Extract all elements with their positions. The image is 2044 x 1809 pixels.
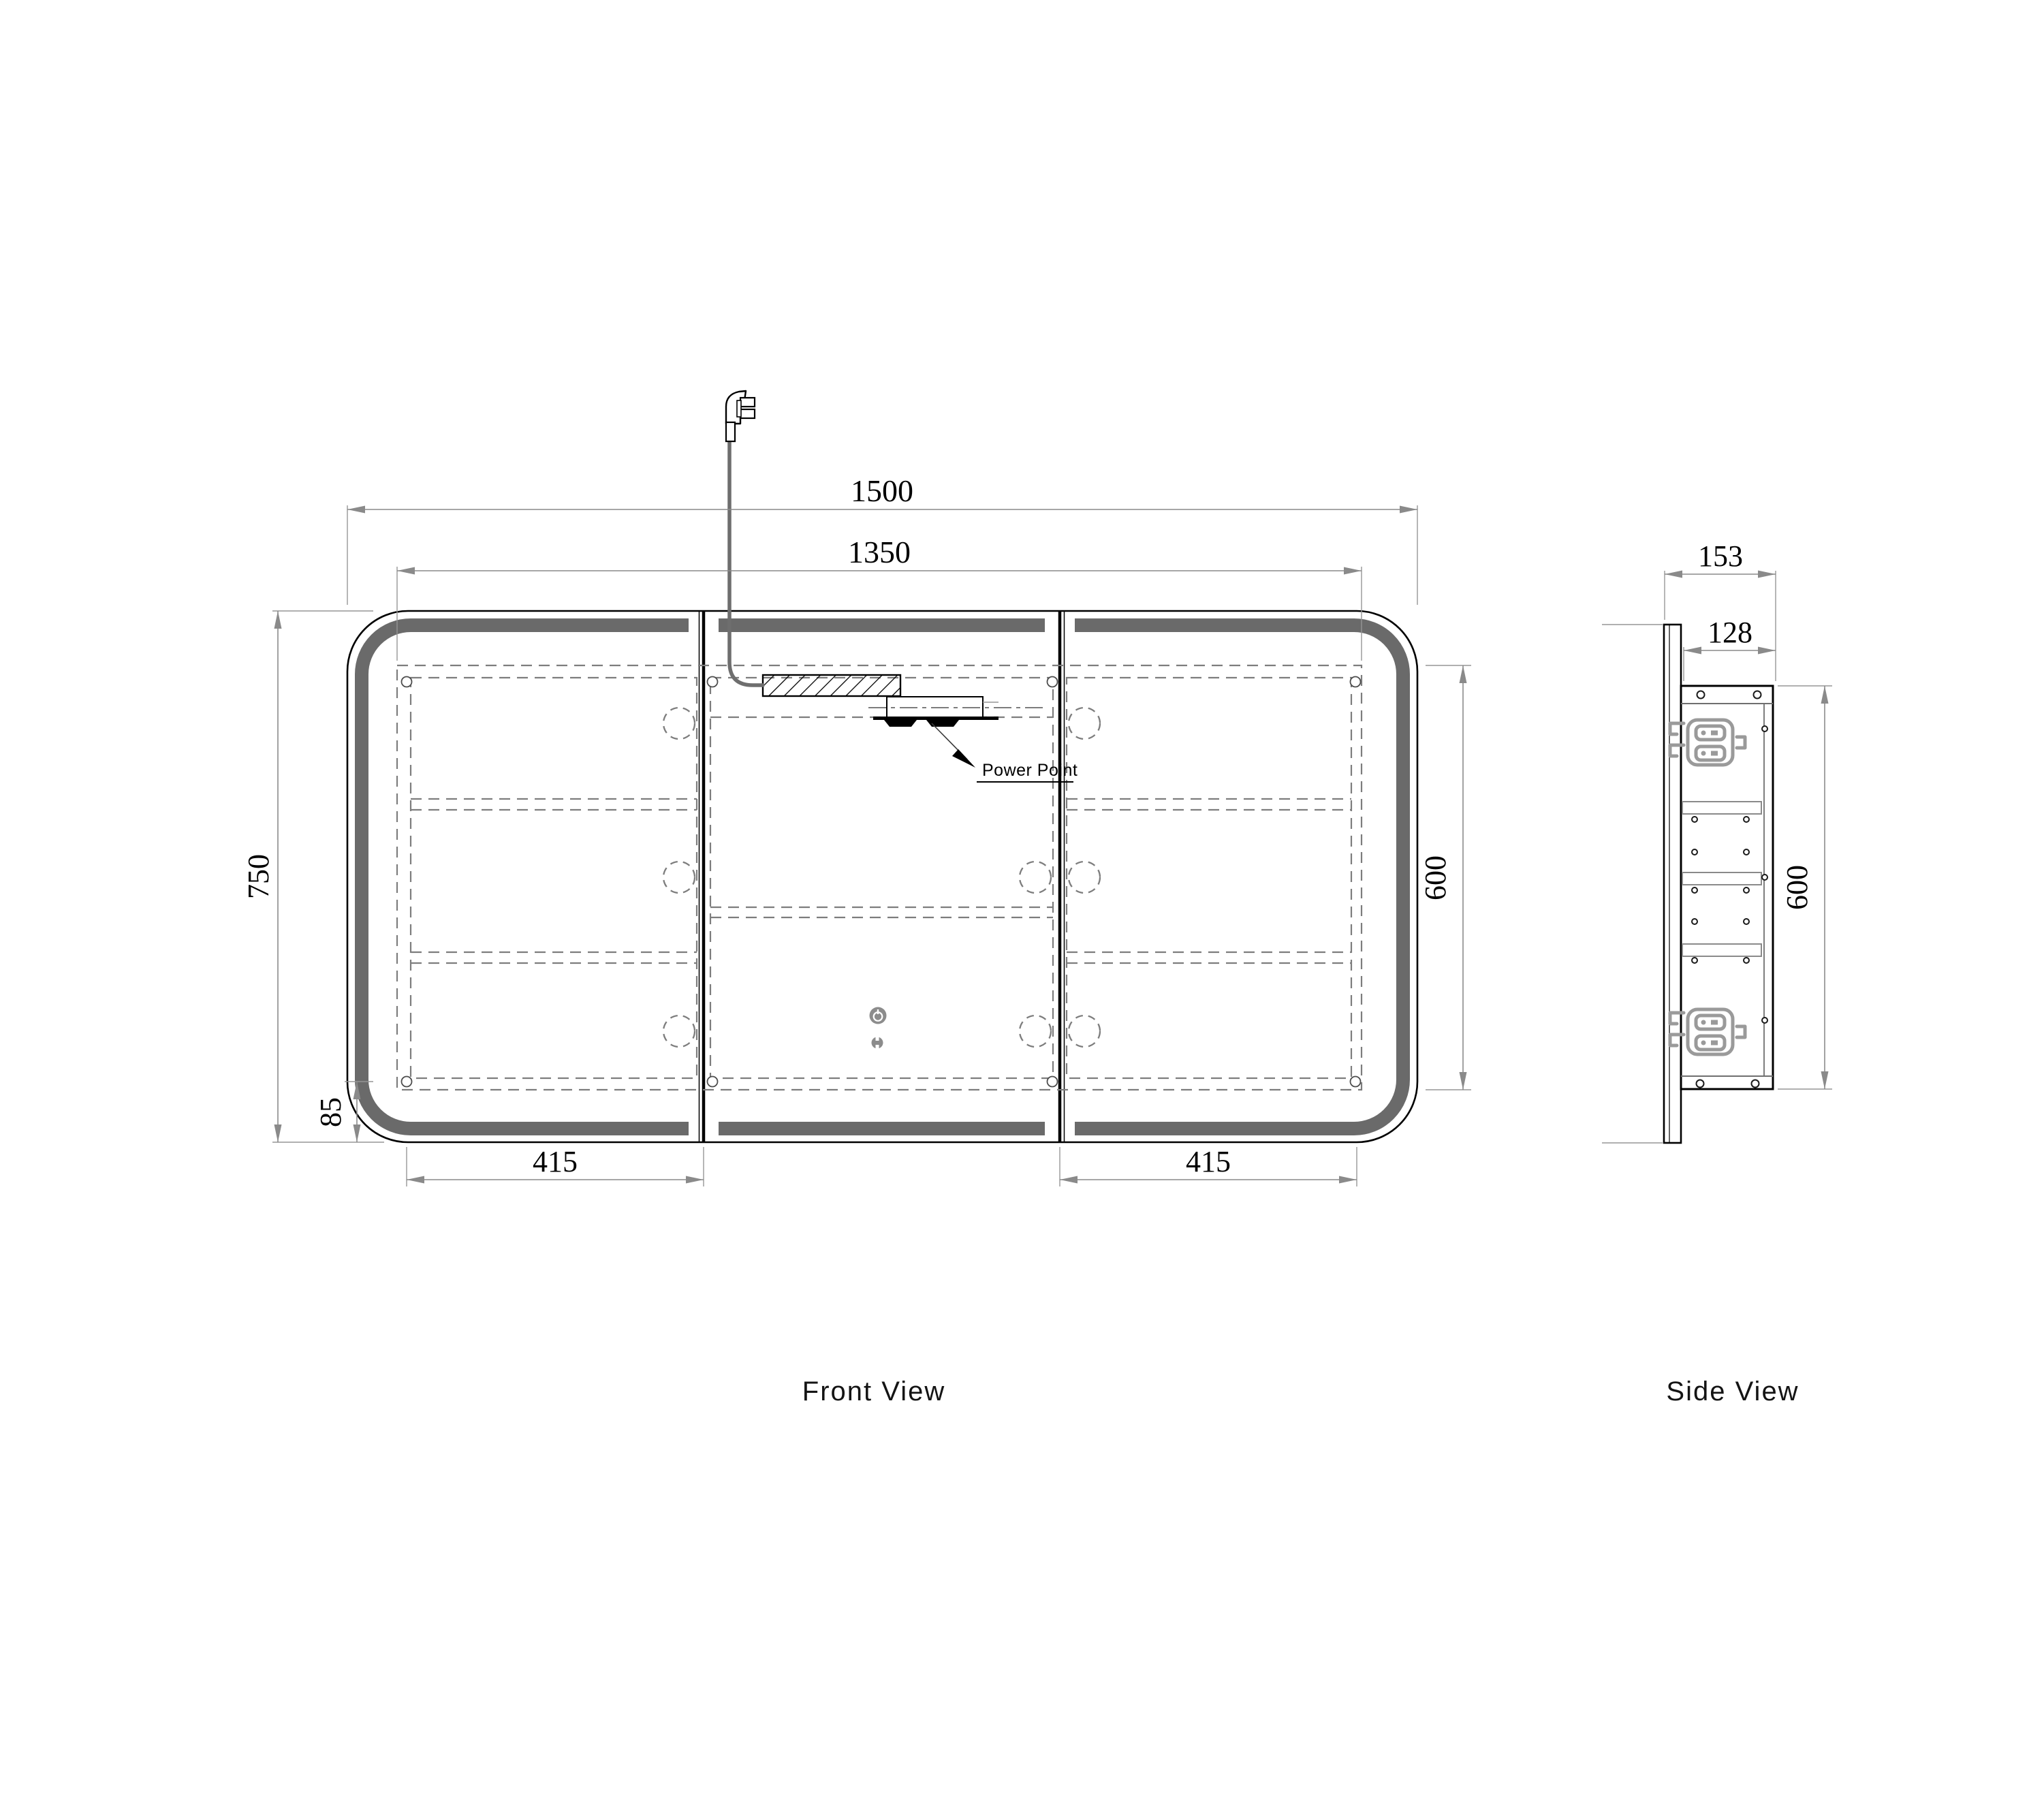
technical-drawing-canvas: Power Point 1500 (0, 0, 2044, 1809)
right-door-width-value: 415 (1186, 1145, 1231, 1178)
led-light-band (362, 625, 1403, 1129)
carcass-hidden-outline (397, 665, 1362, 1090)
left-door-width-value: 415 (533, 1145, 578, 1178)
leader-arrowhead-icon (952, 749, 975, 768)
side-view-drawing: 153 128 600 Side View (1602, 539, 1832, 1406)
overall-width-value: 1500 (851, 473, 913, 508)
power-point-callout: Power Point (932, 723, 1078, 782)
dimension-body-height: 600 (1778, 686, 1832, 1089)
side-view-title: Side View (1666, 1377, 1799, 1406)
body-depth-value: 128 (1708, 616, 1752, 649)
dimension-internal-height: 600 (1419, 665, 1471, 1090)
dimension-left-door-width: 415 (407, 1145, 704, 1186)
touch-sensor-icon (872, 1037, 883, 1049)
front-view-drawing: Power Point 1500 (242, 391, 1471, 1406)
front-view-title: Front View (802, 1377, 945, 1406)
projection-lines (1602, 625, 1663, 1143)
overall-depth-value: 153 (1698, 539, 1743, 573)
drawing-sheet: Power Point 1500 (0, 0, 2044, 1809)
led-driver-hatched-block (763, 675, 900, 696)
shelf-hidden-lines (411, 717, 1351, 963)
power-plug-icon (726, 391, 755, 441)
screw-holes (402, 677, 1361, 1087)
body-height-value: 600 (1780, 865, 1814, 910)
side-door-panel (1664, 625, 1681, 1143)
hinge-position-circles (663, 708, 1100, 1047)
corner-radius-value: 85 (314, 1097, 347, 1127)
dimension-right-door-width: 415 (1060, 1145, 1357, 1186)
internal-width-value: 1350 (848, 535, 911, 569)
dimension-internal-width: 1350 (397, 535, 1362, 661)
overall-height-value: 750 (242, 854, 275, 899)
power-cord (729, 441, 763, 685)
internal-height-value: 600 (1419, 855, 1452, 900)
side-shelves (1682, 802, 1761, 956)
power-button-icon (870, 1007, 887, 1024)
power-point-label: Power Point (982, 761, 1078, 780)
dimension-body-depth: 128 (1684, 616, 1776, 681)
power-point-socket (868, 697, 1045, 727)
